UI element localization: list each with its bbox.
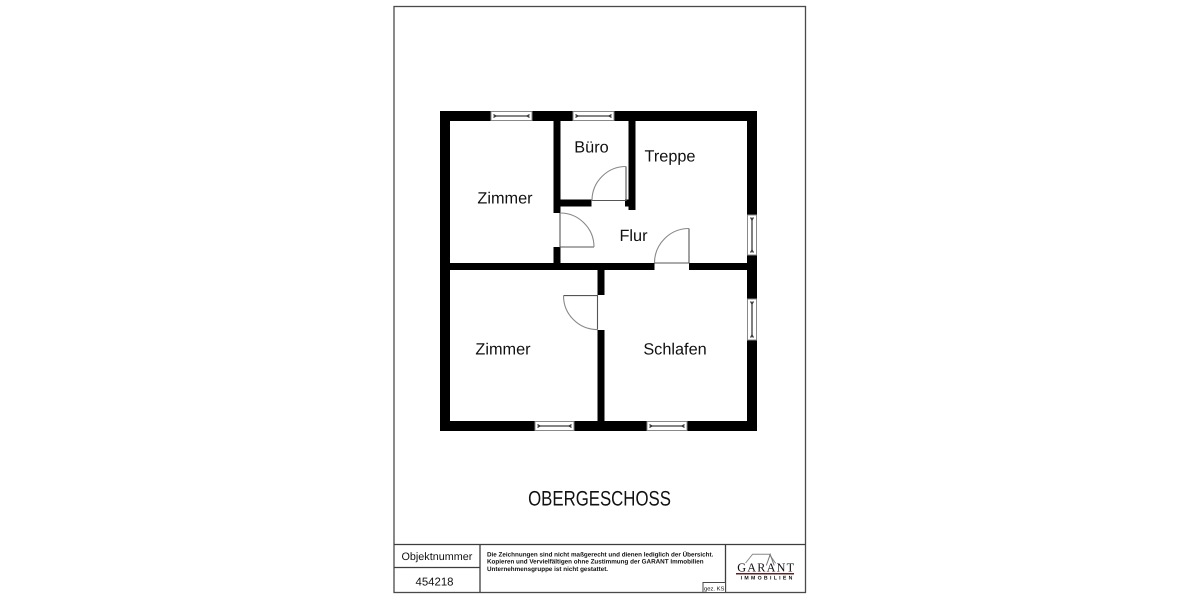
svg-text:OBERGESCHOSS: OBERGESCHOSS	[528, 488, 671, 511]
svg-text:Treppe: Treppe	[645, 148, 696, 166]
svg-text:454218: 454218	[415, 577, 453, 589]
svg-text:Die Zeichnungen sind nicht maß: Die Zeichnungen sind nicht maßgerecht un…	[487, 550, 714, 558]
svg-text:Kopieren und Vervielfältigen o: Kopieren und Vervielfältigen ohne Zustim…	[487, 559, 704, 566]
svg-text:gez. KS: gez. KS	[704, 585, 724, 592]
svg-text:Unternehmensgruppe ist nicht g: Unternehmensgruppe ist nicht gestattet.	[487, 566, 608, 573]
svg-text:GARANT: GARANT	[737, 561, 795, 575]
svg-text:Zimmer: Zimmer	[475, 341, 531, 359]
svg-text:Schlafen: Schlafen	[643, 341, 706, 359]
svg-text:Flur: Flur	[619, 227, 648, 245]
svg-text:IMMOBILIEN: IMMOBILIEN	[741, 575, 795, 581]
svg-text:Büro: Büro	[574, 139, 608, 157]
svg-text:Zimmer: Zimmer	[477, 190, 533, 208]
svg-text:Objektnummer: Objektnummer	[402, 551, 473, 563]
